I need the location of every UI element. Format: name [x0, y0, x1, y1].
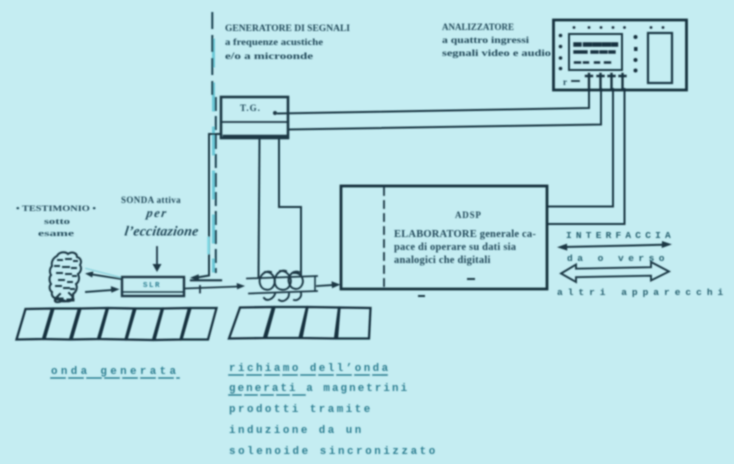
svg-text:a quattro ingressi: a quattro ingressi — [442, 36, 529, 46]
svg-text:SONDA attiva: SONDA attiva — [121, 195, 181, 205]
svg-text:SLR: SLR — [143, 282, 161, 290]
svg-text:da o verso: da o verso — [567, 253, 669, 264]
svg-text:sotto: sotto — [44, 216, 70, 226]
svg-text:segnali video e audio: segnali video e audio — [442, 49, 551, 59]
svg-text:solenoide sincronizzato: solenoide sincronizzato — [229, 446, 438, 458]
svg-text:pace di operare su dati sia: pace di operare su dati sia — [394, 242, 517, 253]
svg-text:e/o a microonde: e/o a microonde — [225, 52, 313, 62]
svg-text:generati a magnetrini: generati a magnetrini — [229, 383, 409, 395]
svg-text:ANALIZZATORE: ANALIZZATORE — [442, 22, 514, 32]
svg-text:T.G.: T.G. — [240, 103, 261, 113]
svg-text:l’eccitazione: l’eccitazione — [124, 224, 200, 239]
svg-text:per: per — [145, 206, 169, 220]
svg-text:a frequenze acustiche: a frequenze acustiche — [225, 38, 323, 48]
svg-text:induzione da un: induzione da un — [229, 425, 364, 437]
svg-text:• TESTIMONIO •: • TESTIMONIO • — [16, 203, 96, 213]
svg-text:ELABORATORE generale ca-: ELABORATORE generale ca- — [394, 229, 536, 240]
svg-text:analogici che digitali: analogici che digitali — [394, 255, 491, 266]
svg-text:onda generata: onda generata — [51, 366, 179, 378]
svg-text:ADSP: ADSP — [455, 210, 482, 220]
svg-text:prodotti tramite: prodotti tramite — [229, 404, 373, 416]
svg-text:INTERFACCIA: INTERFACCIA — [566, 230, 675, 241]
svg-text:r: r — [563, 77, 567, 87]
svg-text:richiamo dell’onda: richiamo dell’onda — [229, 363, 391, 375]
svg-text:altri apparecchi: altri apparecchi — [557, 287, 728, 298]
svg-text:esame: esame — [38, 228, 74, 238]
svg-text:GENERATORE DI SEGNALI: GENERATORE DI SEGNALI — [225, 24, 350, 34]
